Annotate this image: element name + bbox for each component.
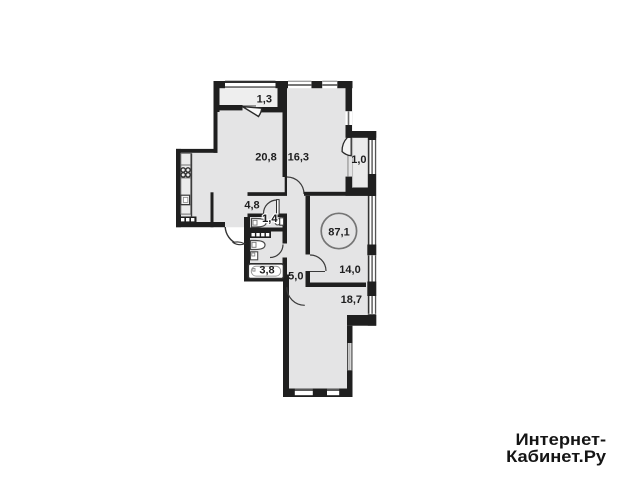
svg-text:20,8: 20,8	[255, 151, 276, 163]
svg-text:1,0: 1,0	[351, 154, 366, 166]
svg-text:5,0: 5,0	[288, 271, 303, 283]
svg-text:1,3: 1,3	[257, 94, 272, 106]
svg-text:14,0: 14,0	[339, 264, 360, 276]
svg-text:1,4: 1,4	[262, 213, 278, 225]
svg-text:87,1: 87,1	[328, 226, 349, 238]
svg-text:4,8: 4,8	[244, 199, 259, 211]
svg-text:3,8: 3,8	[259, 265, 274, 277]
svg-text:18,7: 18,7	[341, 294, 362, 306]
svg-text:16,3: 16,3	[288, 151, 309, 163]
